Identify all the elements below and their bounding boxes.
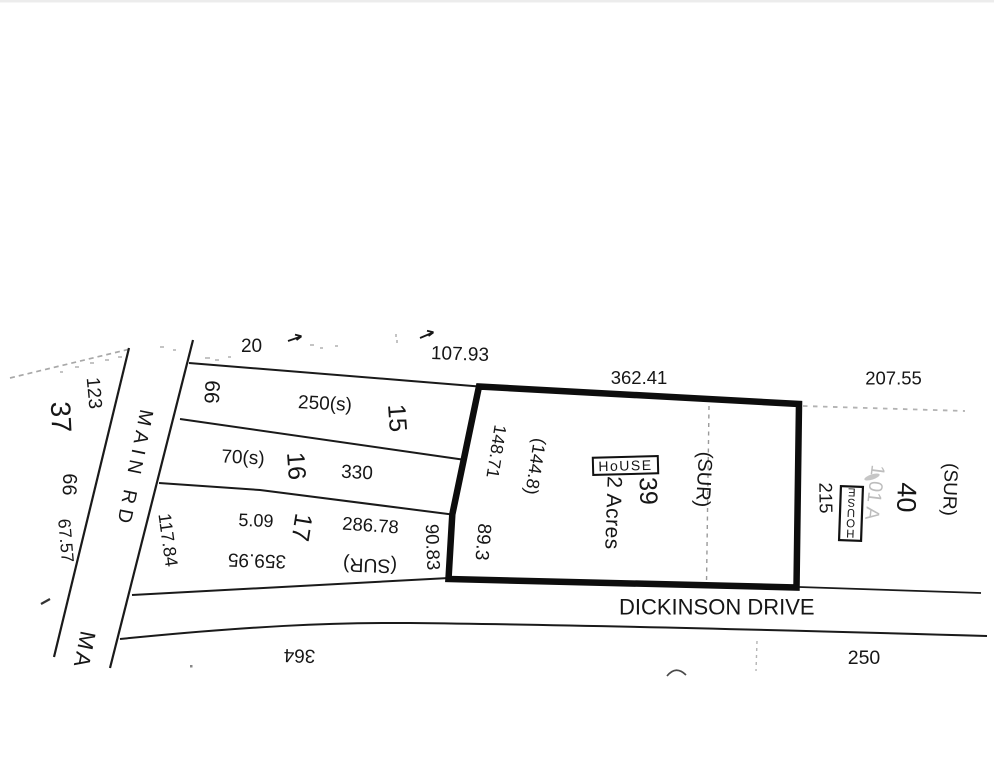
svg-text:215: 215 <box>815 482 837 513</box>
svg-text:DICKINSON DRIVE: DICKINSON DRIVE <box>619 595 815 620</box>
svg-text:HoUSE: HoUSE <box>598 457 653 474</box>
svg-text:330: 330 <box>341 462 374 485</box>
svg-text:70(s): 70(s) <box>221 446 265 469</box>
svg-text:17: 17 <box>286 511 318 543</box>
svg-text:359.95: 359.95 <box>228 548 287 571</box>
svg-text:(SUR): (SUR) <box>343 553 398 577</box>
svg-text:2 Acres: 2 Acres <box>600 476 626 550</box>
svg-text:90.83: 90.83 <box>422 523 445 570</box>
svg-text:107.93: 107.93 <box>431 343 490 366</box>
svg-text:66: 66 <box>58 473 81 496</box>
svg-text:20: 20 <box>241 336 262 357</box>
svg-text:362.41: 362.41 <box>611 367 668 388</box>
svg-text:16: 16 <box>281 451 311 481</box>
svg-text:(SUR): (SUR) <box>938 463 961 516</box>
svg-text:E: E <box>847 485 855 497</box>
svg-text:250(s): 250(s) <box>298 392 353 416</box>
svg-text:37: 37 <box>45 401 78 434</box>
svg-text:250: 250 <box>848 647 881 669</box>
svg-text:39: 39 <box>634 477 663 506</box>
svg-text:207.55: 207.55 <box>865 368 922 389</box>
svg-text:364: 364 <box>283 644 316 666</box>
svg-text:15: 15 <box>382 403 412 433</box>
svg-text:89.3: 89.3 <box>470 523 494 562</box>
svg-text:(SUR): (SUR) <box>691 451 716 508</box>
svg-text:40: 40 <box>891 482 922 513</box>
svg-text:286.78: 286.78 <box>342 513 400 538</box>
svg-text:123: 123 <box>82 376 106 409</box>
svg-text:5.09: 5.09 <box>238 510 274 531</box>
svg-text:67.57: 67.57 <box>54 518 78 563</box>
svg-text:66: 66 <box>199 380 223 405</box>
